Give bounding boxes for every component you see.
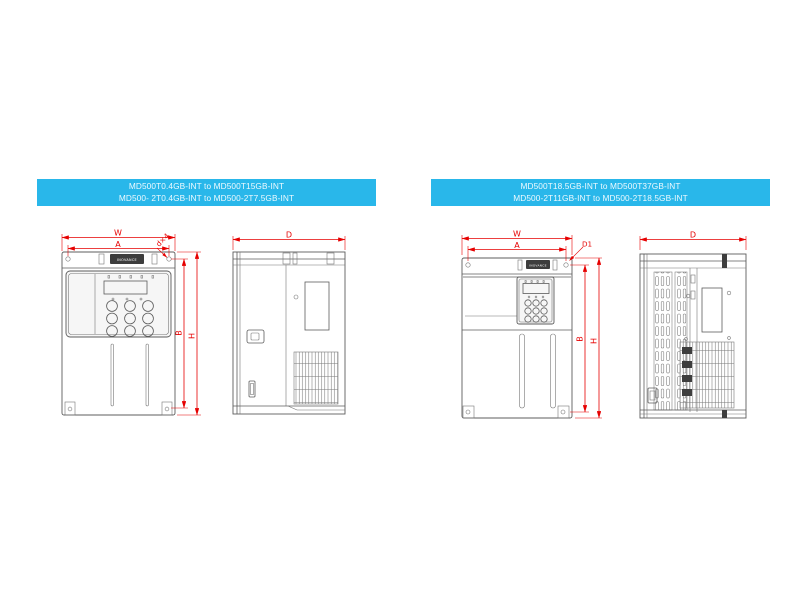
dim-label-mount-width: A [115, 240, 121, 249]
brand-label: INOVANCE [117, 258, 137, 262]
side-rail [722, 254, 727, 268]
dim-label-height: H [188, 333, 197, 339]
unit2-side-view-drawing [640, 254, 746, 418]
heatsink-vent-grid [294, 352, 338, 404]
dim-label-width: W [114, 229, 122, 238]
keypad-panel [517, 277, 554, 324]
brand-label: INOVANCE [529, 263, 546, 267]
unit1-side-dimensions: D [233, 231, 345, 251]
unit2-side-dimensions: D [640, 231, 746, 251]
dim-label-mount-width: A [514, 241, 520, 250]
dim-label-depth: D [286, 231, 292, 240]
dimension-diagram-canvas: INOVANCE W A d×4 [0, 0, 800, 600]
unit1-front-view-drawing: INOVANCE [62, 252, 175, 415]
dim-label-depth: D [690, 231, 696, 240]
dim-label-width: W [513, 230, 521, 239]
dim-label-mount-height: B [576, 336, 585, 342]
unit1-side-view-drawing [233, 252, 345, 414]
unit2-front-view-drawing: INOVANCE [462, 258, 572, 418]
dim-label-hole: D1 [582, 240, 592, 249]
dim-label-mount-height: B [175, 330, 184, 336]
dim-label-height: H [590, 338, 599, 344]
